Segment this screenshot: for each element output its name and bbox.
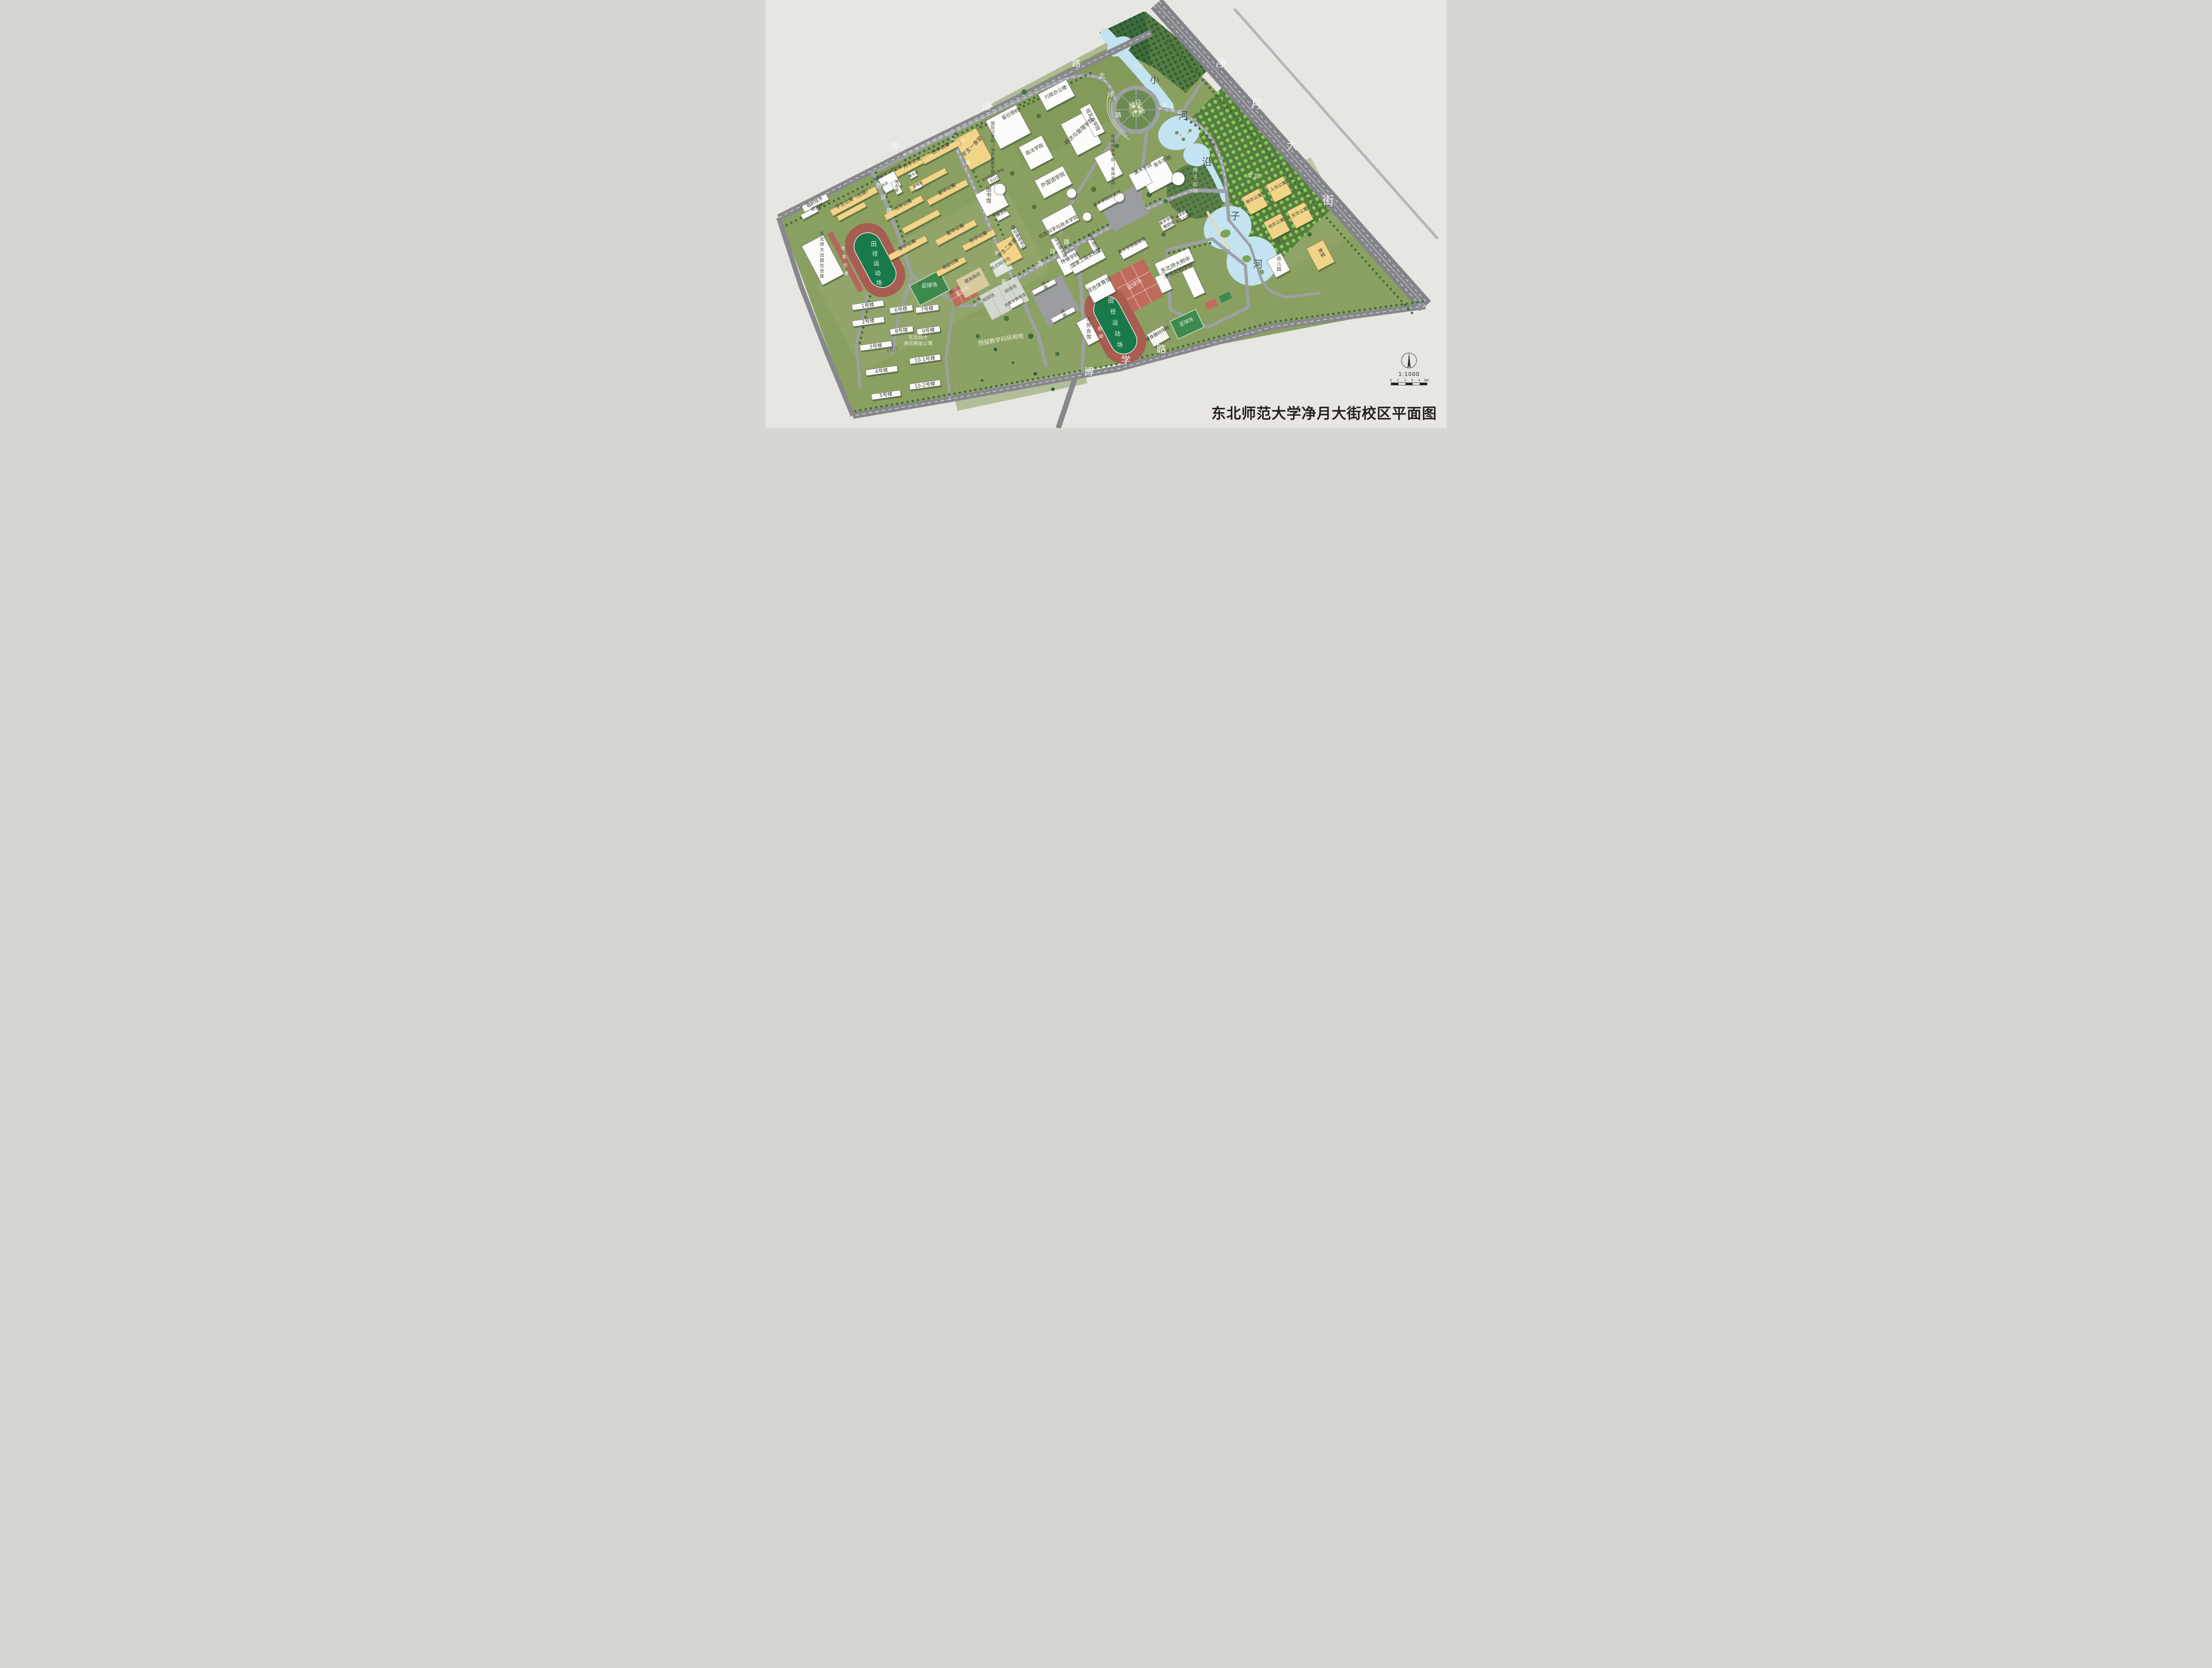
scale-tick-1: 1 <box>1397 379 1399 382</box>
scale-tick-4: 4 <box>1418 379 1420 382</box>
scale-ratio: 1:1000 <box>1387 371 1431 377</box>
map-legend: 1:1000 012345M <box>1387 351 1431 386</box>
north-arrow-icon <box>1400 351 1418 370</box>
scale-bar-segments <box>1391 383 1427 385</box>
scale-bar: 012345M <box>1391 379 1427 386</box>
scale-tick-5: 5M <box>1424 379 1429 382</box>
lotus-flower <box>1179 134 1181 136</box>
scale-tick-3: 3 <box>1411 379 1413 382</box>
scale-tick-2: 2 <box>1404 379 1406 382</box>
campus-ground <box>780 25 1424 415</box>
map-title: 东北师范大学净月大街校区平面图 <box>1211 402 1437 423</box>
campus-map-stage: 净月大街博硕路博学路北环路西环路南环路学诚路学诚路小河沿子河紫光桥1号门3号门6… <box>765 0 1447 428</box>
scale-tick-0: 0 <box>1390 379 1392 382</box>
lotus-flower <box>1187 132 1189 134</box>
campus-map: 净月大街博硕路博学路北环路西环路南环路学诚路学诚路小河沿子河紫光桥1号门3号门6… <box>765 0 1447 428</box>
pond-island <box>1242 255 1251 262</box>
